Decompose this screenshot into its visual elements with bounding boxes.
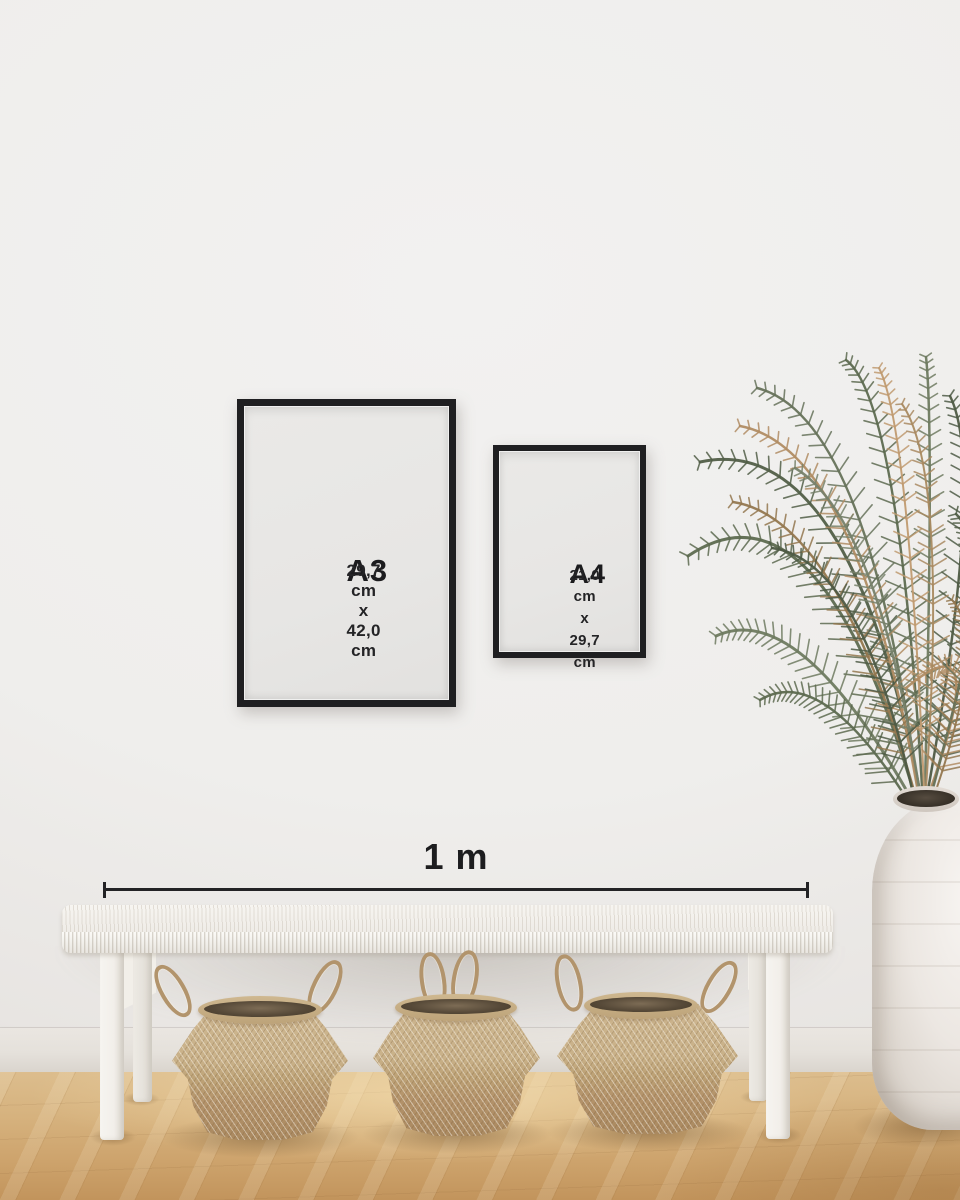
poster-frame-a4: A4 21,0 cm x 29,7 cm [493, 445, 646, 658]
mockup-scene: A3 29,7 cm x 42,0 cm A4 21,0 cm x 29,7 c… [0, 0, 960, 1200]
bench-seat-front-face [62, 932, 833, 953]
frame-a4-dimensions-line2: 29,7 cm [570, 632, 600, 671]
frame-a4-dimensions-line1: 21,0 cm x [570, 567, 600, 628]
basket-rim [395, 994, 517, 1021]
scale-ruler-line [103, 882, 809, 898]
bench-leg-back-right [749, 950, 767, 1101]
bench-leg-back-left [133, 950, 152, 1102]
vase-opening [893, 786, 959, 812]
basket-rim [584, 992, 698, 1019]
ruler-bar [103, 888, 809, 891]
bench-seat [62, 905, 833, 953]
scale-ruler-label: 1 m [103, 836, 809, 878]
white-vase [872, 799, 960, 1130]
poster-frame-a3: A3 29,7 cm x 42,0 cm [237, 399, 456, 707]
bench-leg-front-right [766, 950, 790, 1139]
frame-a4-dimensions: 21,0 cm x 29,7 cm [570, 565, 600, 674]
frame-a3-dimensions: 29,7 cm x 42,0 cm [347, 561, 381, 661]
bench-leg-front-left [100, 950, 124, 1140]
bench-seat-top-face [62, 905, 833, 932]
ruler-right-cap [806, 882, 809, 898]
basket-rim [198, 996, 322, 1024]
scale-ruler: 1 m [103, 836, 809, 898]
